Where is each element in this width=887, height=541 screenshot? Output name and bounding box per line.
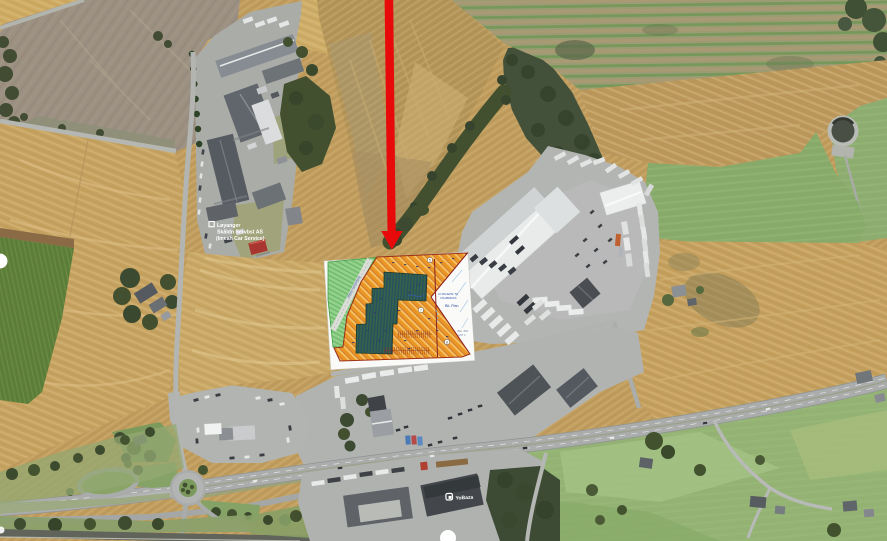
svg-text:BIL Plan: BIL Plan	[445, 304, 458, 308]
svg-text:YoBaza: YoBaza	[455, 495, 473, 502]
svg-text:5: 5	[429, 258, 431, 262]
svg-text:VIKJBRESS: VIKJBRESS	[440, 296, 457, 300]
svg-text:(Imeah Car Service): (Imeah Car Service)	[216, 236, 265, 242]
svg-text:8: 8	[446, 340, 448, 344]
svg-text:(5EL JNR: (5EL JNR	[457, 329, 468, 333]
svg-text:Skåldn Servbst AS: Skåldn Servbst AS	[217, 229, 263, 236]
svg-text:7: 7	[420, 308, 422, 312]
svg-text:GNT 2: GNT 2	[458, 333, 466, 337]
svg-text:Løyanger: Løyanger	[217, 223, 240, 229]
